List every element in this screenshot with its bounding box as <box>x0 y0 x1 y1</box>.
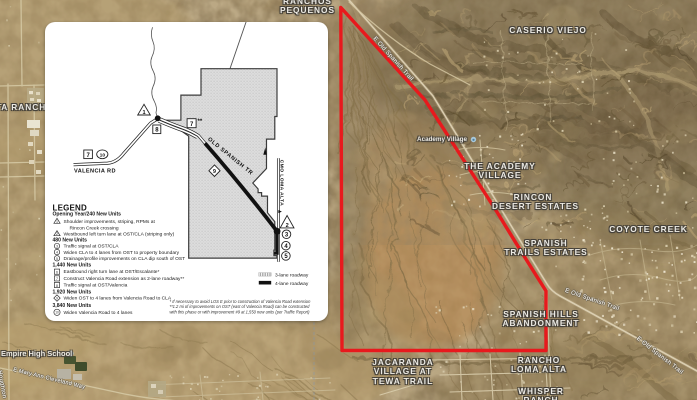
svg-text:10: 10 <box>55 311 59 315</box>
svg-text:VALENCIA RD: VALENCIA RD <box>73 169 115 175</box>
svg-text:Widen Valencia Road to 4 lanes: Widen Valencia Road to 4 lanes <box>63 310 133 316</box>
svg-text:1,920 New Units: 1,920 New Units <box>52 290 91 296</box>
svg-text:Traffic signal at OST/Valencia: Traffic signal at OST/Valencia <box>63 283 127 289</box>
svg-text:4: 4 <box>55 251 57 255</box>
svg-text:Drainage/profile improvements: Drainage/profile improvements on CLA dip… <box>63 256 185 262</box>
svg-text:9: 9 <box>55 297 57 301</box>
svg-text:5: 5 <box>55 257 57 261</box>
svg-text:4-lane roadway: 4-lane roadway <box>274 281 308 287</box>
svg-text:Rincon Creek crossing: Rincon Creek crossing <box>69 226 118 232</box>
svg-text:**: ** <box>197 119 202 125</box>
svg-text:3-lane roadway: 3-lane roadway <box>274 273 308 279</box>
svg-text:1,440 New Units: 1,440 New Units <box>52 263 91 269</box>
svg-text:3,840 New Units: 3,840 New Units <box>52 303 91 309</box>
svg-text:8: 8 <box>55 284 57 288</box>
svg-text:480 New Units: 480 New Units <box>52 238 87 244</box>
svg-text:Opening Year/240 New Units: Opening Year/240 New Units <box>52 212 121 218</box>
svg-text:Construct Valencia Road extens: Construct Valencia Road extension as 2-l… <box>63 276 184 282</box>
svg-text:Westbound left turn lane at OS: Westbound left turn lane at OST/CLA (str… <box>63 232 174 238</box>
svg-text:Widen OST to 4 lanes from Vale: Widen OST to 4 lanes from Valencia Road … <box>63 296 171 302</box>
svg-text:7: 7 <box>55 277 57 281</box>
svg-text:10: 10 <box>99 153 105 159</box>
svg-text:9: 9 <box>212 169 215 175</box>
svg-text:2: 2 <box>285 223 288 229</box>
svg-text:1: 1 <box>142 110 145 116</box>
svg-text:6: 6 <box>55 271 57 275</box>
svg-text:3: 3 <box>55 245 57 249</box>
svg-text:Traffic signal at OST/CLA: Traffic signal at OST/CLA <box>63 244 119 250</box>
svg-text:2: 2 <box>55 232 57 236</box>
svg-text:with this phase or with improv: with this phase or with improvement #9 a… <box>169 310 310 315</box>
svg-text:Widen CLA to 4 lanes from OST: Widen CLA to 4 lanes from OST to propert… <box>63 250 179 256</box>
svg-text:1: 1 <box>55 220 57 224</box>
svg-text:Eastbound right turn lane at O: Eastbound right turn lane at OST/Escalan… <box>63 269 159 275</box>
svg-text:Shoulder improvements, stripin: Shoulder improvements, striping, RPMs at <box>63 219 155 225</box>
svg-text:CMO LOMA ALTA: CMO LOMA ALTA <box>278 160 284 206</box>
